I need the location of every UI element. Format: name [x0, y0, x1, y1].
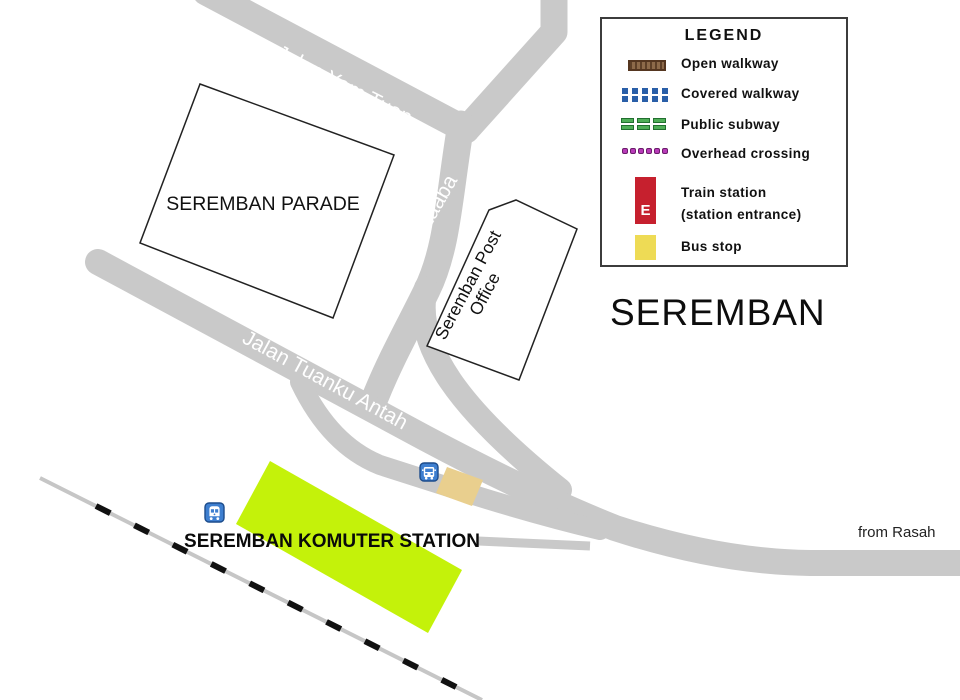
legend-title: LEGEND	[602, 27, 846, 45]
public-subway-swatch	[621, 118, 666, 130]
legend-label-covered-walkway: Covered walkway	[681, 86, 800, 101]
overhead-crossing-swatch	[622, 148, 668, 154]
label-seremban-parade: SEREMBAN PARADE	[166, 193, 360, 215]
seremban-map: Jalan Yam Tuan Jalan Zaaba Jalan Tuanku …	[0, 0, 960, 700]
legend-label-train-station-line1: Train station	[681, 182, 801, 204]
road-station-stub	[478, 541, 590, 546]
covered-walkway-swatch	[622, 88, 668, 102]
legend-label-train-station-line2: (station entrance)	[681, 204, 801, 226]
open-walkway-swatch	[628, 60, 666, 71]
legend-label-public-subway: Public subway	[681, 117, 780, 132]
train-station-entrance-swatch: E	[635, 177, 656, 224]
map-title: SEREMBAN	[610, 292, 826, 334]
train-icon	[205, 503, 224, 522]
bus-stop-swatch	[635, 235, 656, 260]
road-north-spur	[466, 0, 554, 130]
legend-label-open-walkway: Open walkway	[681, 56, 779, 71]
legend-box: LEGEND Open walkway Covered walkway Publ…	[600, 17, 848, 267]
from-rasah-label: from Rasah	[858, 524, 936, 541]
legend-label-overhead-crossing: Overhead crossing	[681, 146, 810, 161]
legend-label-train-station: Train station (station entrance)	[681, 182, 801, 226]
bus-icon	[420, 463, 438, 481]
station-entrance-letter: E	[640, 203, 650, 218]
legend-label-bus-stop: Bus stop	[681, 239, 742, 254]
label-komuter-station: SEREMBAN KOMUTER STATION	[184, 531, 480, 552]
